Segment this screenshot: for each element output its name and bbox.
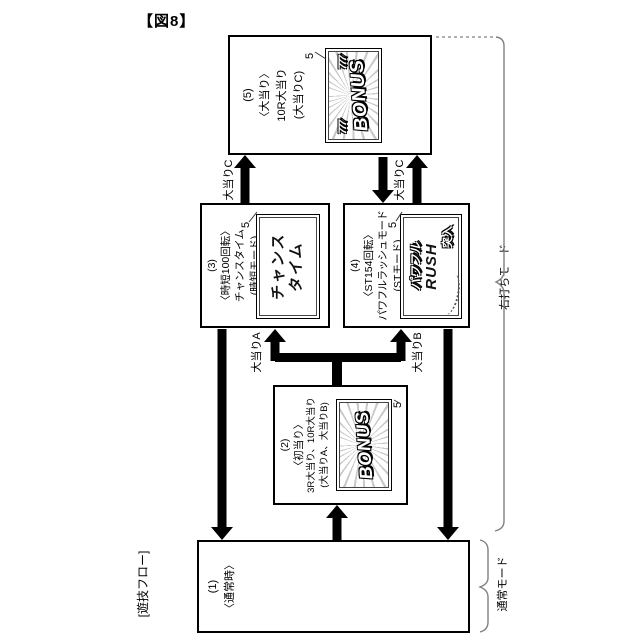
box-3-chance-time: (3) 〈時短100回転〉 チャンスタイム (時短モード) 5 チャンス タイム — [200, 203, 330, 328]
box-5-labels: (5) 〈大当り〉 10R大当り (大当りC) — [230, 37, 308, 153]
display-screen-chance: チャンス タイム — [256, 214, 320, 319]
box-3-line1: 〈時短100回転〉 — [219, 205, 233, 326]
normal-mode-brace — [480, 540, 488, 632]
arrow-box1-to-box2 — [326, 505, 348, 540]
chance-line1: チャンス — [270, 232, 288, 301]
ref-numeral-5: 5 — [304, 53, 316, 59]
box-1-content: (1) 〈通常時〉 — [199, 542, 468, 631]
arrow-box3-to-box1 — [211, 329, 233, 540]
arrow-box3-to-box5 — [234, 155, 256, 203]
ref-numeral-5: 5 — [392, 402, 404, 408]
box-2-first-hit: (2) 〈初当り〉 3R大当り、10R大当り (大当りA、大当りB) 5 BON… — [273, 385, 408, 505]
rush-line1: パワフル — [407, 243, 424, 291]
chance-line2: タイム — [288, 240, 306, 292]
ref-numeral-5: 5 — [387, 222, 399, 228]
arrow-label-jackpot-c-right: 大当りC — [391, 158, 407, 202]
box-3-labels: (3) 〈時短100回転〉 チャンスタイム (時短モード) — [202, 205, 262, 326]
arrow-box2-branch — [264, 329, 412, 385]
box-2-line1: 〈初当り〉 — [292, 387, 306, 503]
rush-line3: 突入 — [439, 226, 455, 248]
box-4-number: (4) — [348, 205, 362, 326]
box-4-content: (4) 〈ST154回転〉 パワフルラッシュモード (STモード) 5 パワフル… — [345, 205, 468, 326]
arrow-box4-to-box1 — [437, 329, 459, 540]
brace-label-right-strike-mode: 右打ちモード — [496, 246, 512, 308]
bonus-text: BONUS — [346, 59, 373, 132]
box-2-number: (2) — [278, 387, 292, 503]
brace-label-normal-mode: 通常モード — [494, 558, 510, 610]
arrow-label-jackpot-c-left: 大当りC — [220, 158, 236, 202]
film-strip-decoration — [437, 272, 459, 316]
bonus-text: BONUS — [351, 410, 377, 479]
game-flow-label: [遊技フロー] — [133, 538, 151, 630]
box-5-line2: 10R大当り — [274, 37, 291, 153]
box-2-line2: 3R大当り、10R大当り — [306, 387, 319, 503]
display-screen-bonus: BONUS — [336, 399, 392, 491]
box-4-line1: 〈ST154回転〉 — [362, 205, 376, 326]
display-screen-jackpot: 777 777 BONUS — [325, 48, 382, 143]
box-1-line1: 〈通常時〉 — [222, 542, 239, 631]
arrow-box4-to-box5 — [406, 155, 428, 203]
box-3-number: (3) — [205, 205, 219, 326]
box-3-content: (3) 〈時短100回転〉 チャンスタイム (時短モード) 5 チャンス タイム — [202, 205, 328, 326]
arrow-label-jackpot-b: 大当りB — [409, 330, 425, 375]
box-4-powerful-rush: (4) 〈ST154回転〉 パワフルラッシュモード (STモード) 5 パワフル… — [343, 203, 470, 328]
box-1-normal: (1) 〈通常時〉 — [197, 540, 470, 633]
ref-numeral-5: 5 — [240, 222, 252, 228]
box-2-labels: (2) 〈初当り〉 3R大当り、10R大当り (大当りA、大当りB) — [275, 387, 332, 503]
box-1-labels: (1) 〈通常時〉 — [199, 542, 239, 631]
figure-title: 【図8】 — [138, 10, 195, 31]
box-2-content: (2) 〈初当り〉 3R大当り、10R大当り (大当りA、大当りB) 5 BON… — [275, 387, 406, 503]
box-5-number: (5) — [240, 37, 257, 153]
box-5-content: (5) 〈大当り〉 10R大当り (大当りC) 5 777 777 BONUS — [230, 37, 430, 153]
box-1-number: (1) — [205, 542, 222, 631]
arrow-label-jackpot-a: 大当りA — [248, 330, 264, 375]
box-2-line3: (大当りA、大当りB) — [319, 387, 332, 503]
box-5-jackpot: (5) 〈大当り〉 10R大当り (大当りC) 5 777 777 BONUS — [228, 35, 432, 155]
patent-figure-8: 【図8】 (5) 〈大当り〉 10R大当り (大当りC) 5 777 777 B… — [0, 0, 640, 640]
rush-line2: RUSH — [424, 243, 439, 290]
sevens-left: 777 — [337, 122, 349, 134]
box-5-line1: 〈大当り〉 — [257, 37, 274, 153]
display-screen-rush: パワフル RUSH 突入 — [400, 214, 462, 319]
